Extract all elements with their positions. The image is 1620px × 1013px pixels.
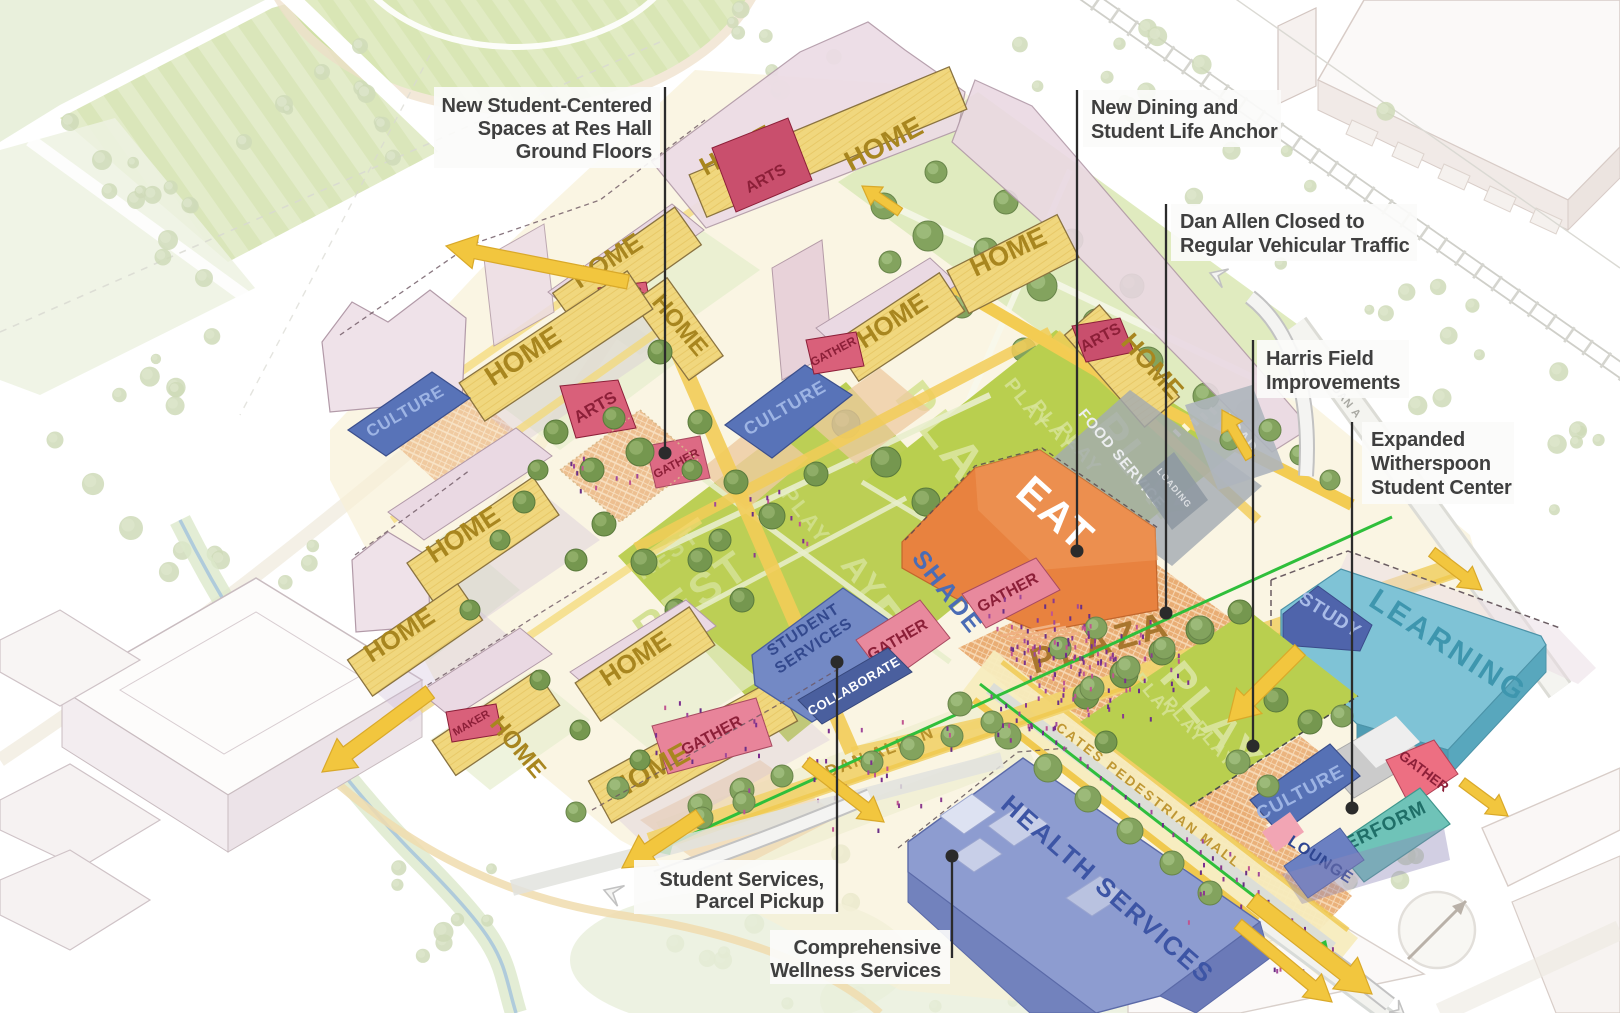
svg-text:Spaces at Res Hall: Spaces at Res Hall <box>478 118 652 140</box>
svg-text:Improvements: Improvements <box>1266 372 1400 394</box>
svg-text:New Student-Centered: New Student-Centered <box>442 95 652 117</box>
svg-text:Parcel Pickup: Parcel Pickup <box>695 891 824 913</box>
svg-text:Witherspoon: Witherspoon <box>1371 453 1491 475</box>
svg-text:Harris Field: Harris Field <box>1266 348 1374 370</box>
svg-text:Student Life Anchor: Student Life Anchor <box>1091 121 1278 143</box>
svg-text:Expanded: Expanded <box>1371 429 1465 451</box>
svg-text:New Dining and: New Dining and <box>1091 97 1238 119</box>
svg-text:Dan Allen Closed to: Dan Allen Closed to <box>1180 211 1364 233</box>
svg-text:Comprehensive: Comprehensive <box>794 937 942 959</box>
svg-text:Wellness Services: Wellness Services <box>770 960 941 982</box>
svg-text:Student Center: Student Center <box>1371 477 1512 499</box>
svg-text:Ground Floors: Ground Floors <box>516 141 652 163</box>
svg-text:Student Services,: Student Services, <box>660 869 824 891</box>
svg-text:Regular Vehicular Traffic: Regular Vehicular Traffic <box>1180 235 1410 257</box>
